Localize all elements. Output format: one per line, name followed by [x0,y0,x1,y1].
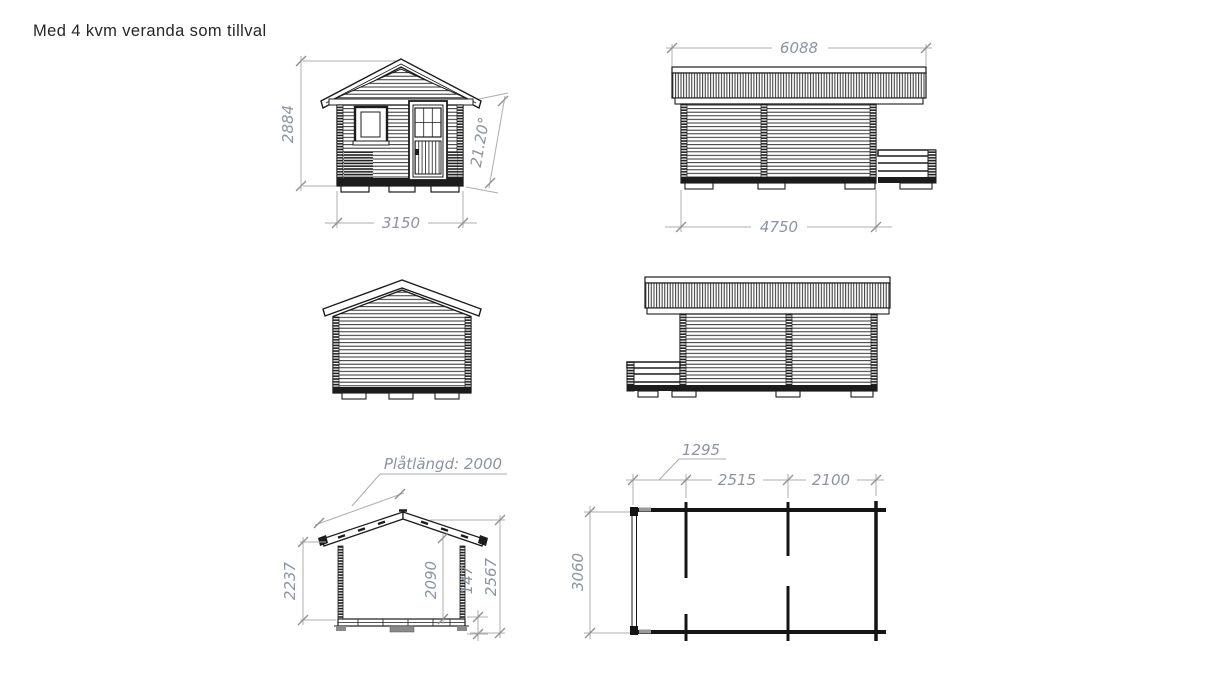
log-joint-c [871,314,877,391]
log-joint-left [681,104,687,183]
dim-text-3060: 3060 [569,553,587,591]
plan-gray-mark-bottom [639,630,651,634]
dim-room-length: 2515 [712,471,763,489]
side-right-drawing [672,67,936,189]
plan-walls [630,501,886,641]
dim-text-2237: 2237 [281,561,299,600]
section-wall-left [338,546,343,619]
side-elevation-left-view [627,277,890,397]
dim-room2-length: 2100 [806,471,857,489]
technical-drawing-svg: 2884 3150 21.20° [0,0,1214,683]
dim-text-2515: 2515 [718,471,756,489]
plan-veranda-front-edge [630,507,638,635]
dim-text-2884: 2884 [279,105,297,143]
dim-interior-height: 2090 [422,533,448,624]
rear-log-ends-right [465,317,471,393]
log-joint-right [870,104,876,183]
roof-ridge-cap-2 [645,277,890,283]
drawing-sheet: Med 4 kvm veranda som tillval [0,0,1214,683]
front-elevation-view: 2884 3150 21.20° [279,56,508,232]
plan-gray-mark-top [639,508,651,512]
dim-text-roof-angle: 21.20° [467,116,493,169]
foundation-pad-center [390,626,414,632]
side-elevation-right-view: 6088 4750 [665,39,936,236]
foundation-pad-right [457,626,467,631]
side-left-wall-siding [680,314,877,391]
section-floor [334,619,469,632]
dim-text-4750: 4750 [760,218,798,236]
roof-shingle-band-2 [645,283,890,308]
dim-text-3150: 3150 [382,214,420,232]
section-roof [318,511,488,547]
plan-dimensions-top: 1295 2515 2100 [626,441,884,505]
roof-fascia-2 [647,308,889,314]
roof-shingle-band [672,73,926,98]
front-house-drawing [321,59,481,192]
front-corner-log-ends-right [457,105,463,186]
side-right-foundation [685,183,932,189]
dim-eave-height: 2237 [281,537,336,625]
log-joint-a [680,314,686,391]
side-left-base-log [680,385,877,391]
side-base-log [681,177,876,183]
roof-fascia [675,98,923,104]
rear-base-log [333,387,471,393]
front-foundation-blocks [341,186,459,192]
dim-text-2100: 2100 [812,471,850,489]
plan-dimension-left: 3060 [569,506,630,639]
veranda-railing-left [627,362,680,391]
cross-section-view: Plåtlängd: 2000 [281,455,507,641]
rear-log-ends-left [333,317,339,393]
dim-text-147: 147 [458,565,476,594]
dim-text-2090: 2090 [422,561,440,599]
front-window [353,107,389,145]
dim-wall-length: 4750 [665,190,892,236]
front-dark-logs-right [448,152,457,178]
log-joint-middle [761,104,767,183]
dim-front-roof-angle: 21.20° [466,93,508,193]
front-dark-logs-left [344,152,373,178]
rear-foundation [342,393,459,399]
front-eave-fascia [329,99,473,105]
roof-ridge-cap [672,67,926,73]
dim-roof-length: 6088 [666,39,932,66]
dim-text-6088: 6088 [780,39,818,57]
floor-plan-view: 1295 2515 2100 3060 [569,441,886,641]
dim-front-width: 3150 [325,191,477,232]
rear-elevation-view [323,280,481,399]
front-door [409,101,447,180]
side-left-foundation [638,391,873,397]
door-handle [416,149,420,155]
veranda-railing-right [878,150,936,183]
sheet-length-label: Plåtlängd: 2000 [384,455,502,473]
dim-text-2567: 2567 [482,557,500,596]
dim-text-1295: 1295 [682,441,720,459]
front-corner-log-ends-left [337,105,343,186]
log-joint-b [786,314,792,391]
foundation-pad-left [336,626,346,631]
side-wall-siding [681,104,876,183]
